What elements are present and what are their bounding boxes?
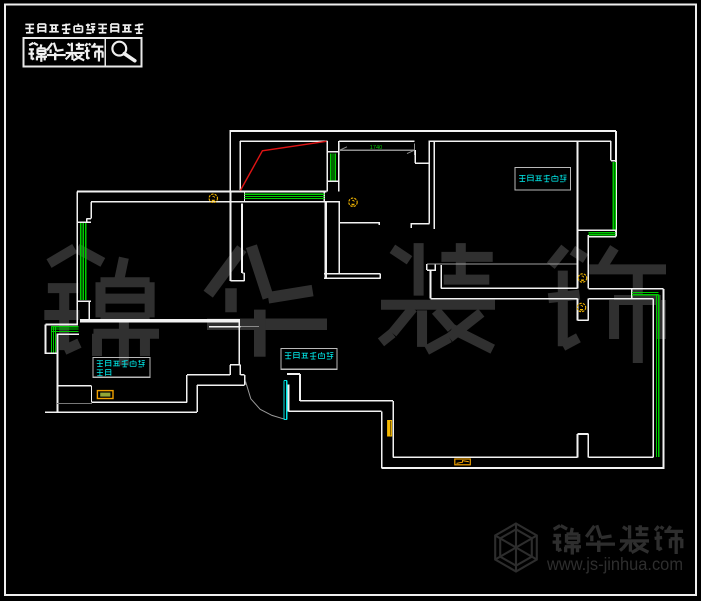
svg-text:1740: 1740 xyxy=(370,145,382,151)
svg-text:www.js-jinhua.com: www.js-jinhua.com xyxy=(546,554,683,574)
